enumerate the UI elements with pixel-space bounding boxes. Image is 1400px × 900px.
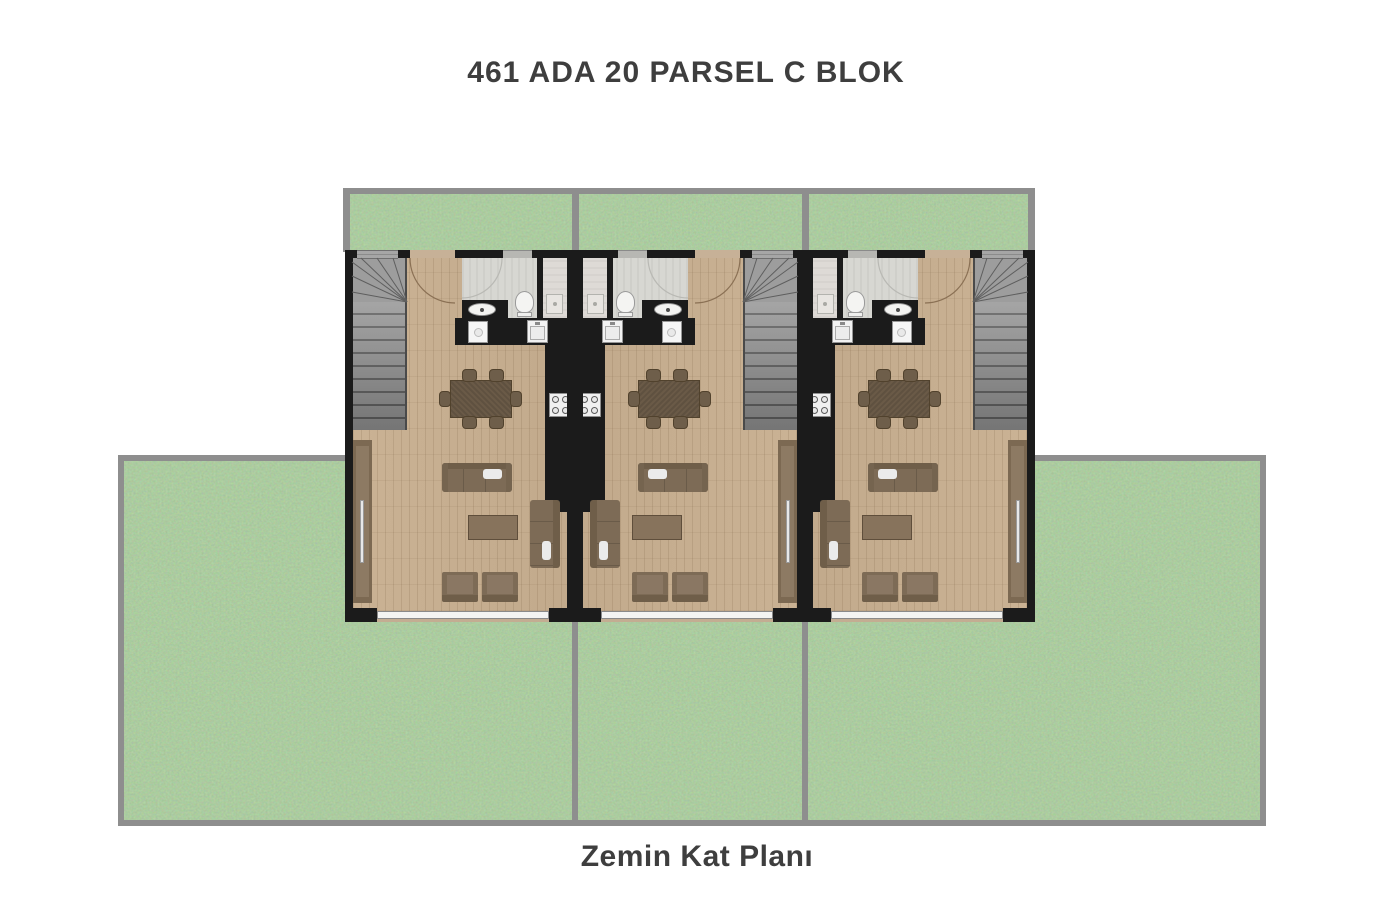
stair-fan-lines	[743, 258, 798, 302]
unit-2	[575, 250, 805, 622]
floor-plan-canvas: 461 ADA 20 PARSEL C BLOK	[0, 0, 1400, 900]
grass-texture	[350, 194, 572, 252]
stair-fan-lines	[973, 258, 1028, 302]
entry-door-swing-arc	[695, 258, 740, 303]
bathroom-door-swing-arc	[648, 258, 688, 298]
door-swing-overlay	[805, 250, 1035, 622]
rear-garden-unit-2	[579, 194, 802, 252]
bathroom-door-swing-arc	[462, 258, 502, 298]
rear-garden-unit-1	[350, 194, 572, 252]
plan-caption: Zemin Kat Planı	[0, 840, 1394, 874]
entry-door-swing-arc	[925, 258, 970, 303]
stair-fan-lines	[352, 258, 407, 302]
garden-divider-2	[802, 605, 808, 826]
door-swing-overlay	[575, 250, 805, 622]
garden-divider-1	[572, 605, 578, 826]
unit-1	[345, 250, 575, 622]
door-swing-overlay	[345, 250, 575, 622]
rear-garden-unit-3	[809, 194, 1028, 252]
unit-3	[805, 250, 1035, 622]
rear-garden-strip	[343, 188, 1035, 252]
grass-texture	[579, 194, 802, 252]
grass-texture	[809, 194, 1028, 252]
entry-door-swing-arc	[410, 258, 455, 303]
bathroom-door-swing-arc	[878, 258, 918, 298]
plan-title: 461 ADA 20 PARSEL C BLOK	[0, 56, 1372, 90]
